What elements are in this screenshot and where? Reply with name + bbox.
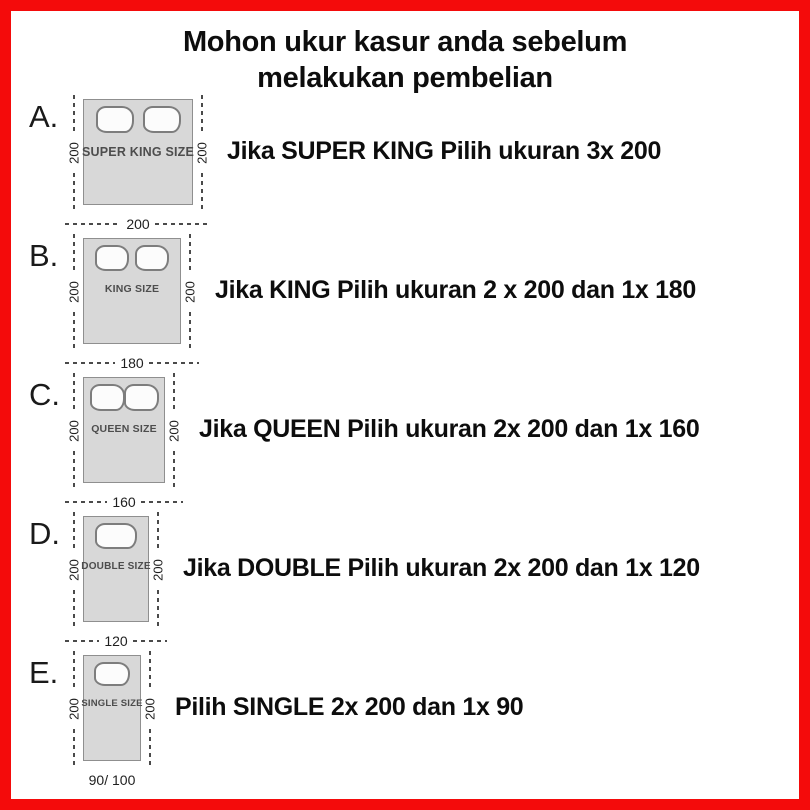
pillows — [95, 523, 137, 549]
right-dimension-line: 200 — [141, 651, 159, 768]
dash-line — [73, 451, 75, 490]
row-caption: Jika DOUBLE Pilih ukuran 2x 200 dan 1x 1… — [183, 554, 700, 583]
dash-line — [173, 451, 175, 490]
bottom-dimension-line: 200 — [65, 216, 211, 232]
dash-line — [73, 95, 75, 134]
dash-line — [73, 312, 75, 351]
dash-line — [155, 223, 211, 225]
dash-line — [65, 501, 107, 503]
bed-diagram-queen: 200 QUEEN SIZE 200 160 — [65, 377, 183, 510]
row-letter: C. — [11, 379, 65, 410]
right-dimension-line: 200 — [165, 373, 183, 490]
row-letter: D. — [11, 518, 65, 549]
dash-line — [157, 590, 159, 629]
pillow — [95, 523, 137, 549]
pillow — [135, 245, 169, 271]
size-row-double: D. 200 DOUBLE SIZE 200 — [11, 516, 799, 653]
dash-line — [141, 501, 183, 503]
bed-illustration: KING SIZE — [83, 238, 181, 344]
left-dimension-label: 200 — [65, 550, 83, 590]
bed-size-label: DOUBLE SIZE — [81, 561, 150, 572]
bottom-dimension-label: 180 — [115, 355, 148, 371]
bottom-dimension-label: 200 — [121, 216, 154, 232]
dash-line — [201, 95, 203, 134]
left-dimension-label: 200 — [65, 689, 83, 729]
left-dimension-label: 200 — [65, 272, 83, 312]
dash-line — [173, 373, 175, 412]
bed-illustration: DOUBLE SIZE — [83, 516, 149, 622]
right-dimension-line: 200 — [181, 234, 199, 351]
dash-line — [73, 729, 75, 768]
bottom-dimension-line: 180 — [65, 355, 199, 371]
row-caption: Jika SUPER KING Pilih ukuran 3x 200 — [227, 137, 661, 166]
right-dimension-label: 200 — [141, 689, 159, 729]
right-dimension-label: 200 — [165, 411, 183, 451]
left-dimension-line: 200 — [65, 373, 83, 490]
bed-size-label: SINGLE SIZE — [81, 698, 142, 709]
left-dimension-line: 200 — [65, 95, 83, 212]
pillow — [143, 106, 181, 133]
bed-diagram-single: 200 SINGLE SIZE 200 90/ 100 — [65, 655, 159, 788]
bed-illustration: SUPER KING SIZE — [83, 99, 193, 205]
bottom-dimension-line: 120 — [65, 633, 167, 649]
pillows — [95, 245, 169, 271]
bottom-dimension-label: 160 — [107, 494, 140, 510]
size-row-queen: C. 200 QUEEN SIZE 200 — [11, 377, 799, 514]
right-dimension-label: 200 — [181, 272, 199, 312]
dash-line — [189, 312, 191, 351]
pillows — [96, 106, 181, 133]
dash-line — [65, 640, 99, 642]
row-caption: Jika KING Pilih ukuran 2 x 200 dan 1x 18… — [215, 276, 696, 305]
dash-line — [149, 729, 151, 768]
bed-illustration: SINGLE SIZE — [83, 655, 141, 761]
title-line-2: melakukan pembelian — [11, 61, 799, 97]
dash-line — [149, 362, 199, 364]
pillow — [95, 245, 129, 271]
dash-line — [73, 512, 75, 551]
bottom-dimension-label: 120 — [99, 633, 132, 649]
row-caption: Pilih SINGLE 2x 200 dan 1x 90 — [175, 693, 523, 722]
dash-line — [73, 173, 75, 212]
bed-size-label: KING SIZE — [105, 283, 159, 295]
measurement-guide: Mohon ukur kasur anda sebelum melakukan … — [0, 0, 810, 810]
pillows — [90, 384, 159, 411]
left-dimension-label: 200 — [65, 411, 83, 451]
dash-line — [73, 651, 75, 690]
row-letter: B. — [11, 240, 65, 271]
dash-line — [65, 223, 121, 225]
bed-diagram-double: 200 DOUBLE SIZE 200 120 — [65, 516, 167, 649]
dash-line — [73, 373, 75, 412]
pillow — [90, 384, 125, 411]
dash-line — [189, 234, 191, 273]
bed-size-label: SUPER KING SIZE — [82, 145, 194, 159]
left-dimension-line: 200 — [65, 651, 83, 768]
row-letter: E. — [11, 657, 65, 688]
left-dimension-label: 200 — [65, 133, 83, 173]
size-row-single: E. 200 SINGLE SIZE 200 — [11, 655, 799, 792]
bottom-dimension-label: 90/ 100 — [84, 772, 141, 788]
dash-line — [65, 362, 115, 364]
right-dimension-label: 200 — [149, 550, 167, 590]
bed-illustration: QUEEN SIZE — [83, 377, 165, 483]
bed-size-label: QUEEN SIZE — [91, 423, 157, 435]
dash-line — [73, 590, 75, 629]
right-dimension-line: 200 — [149, 512, 167, 629]
right-dimension-line: 200 — [193, 95, 211, 212]
bottom-dimension-line: 160 — [65, 494, 183, 510]
page-title: Mohon ukur kasur anda sebelum melakukan … — [11, 25, 799, 97]
pillow — [96, 106, 134, 133]
dash-line — [201, 173, 203, 212]
right-dimension-label: 200 — [193, 133, 211, 173]
pillows — [94, 662, 130, 686]
pillow — [94, 662, 130, 686]
dash-line — [149, 651, 151, 690]
bottom-dimension-line: 90/ 100 — [65, 772, 159, 788]
title-line-1: Mohon ukur kasur anda sebelum — [11, 25, 799, 61]
dash-line — [73, 234, 75, 273]
left-dimension-line: 200 — [65, 512, 83, 629]
dash-line — [157, 512, 159, 551]
row-letter: A. — [11, 101, 65, 132]
bed-diagram-super-king: 200 SUPER KING SIZE 200 — [65, 99, 211, 232]
size-row-super-king: A. 200 SUPER KING SIZE 200 — [11, 99, 799, 236]
bed-diagram-king: 200 KING SIZE 200 180 — [65, 238, 199, 371]
pillow — [124, 384, 159, 411]
left-dimension-line: 200 — [65, 234, 83, 351]
dash-line — [133, 640, 167, 642]
size-row-king: B. 200 KING SIZE 200 — [11, 238, 799, 375]
row-caption: Jika QUEEN Pilih ukuran 2x 200 dan 1x 16… — [199, 415, 699, 444]
